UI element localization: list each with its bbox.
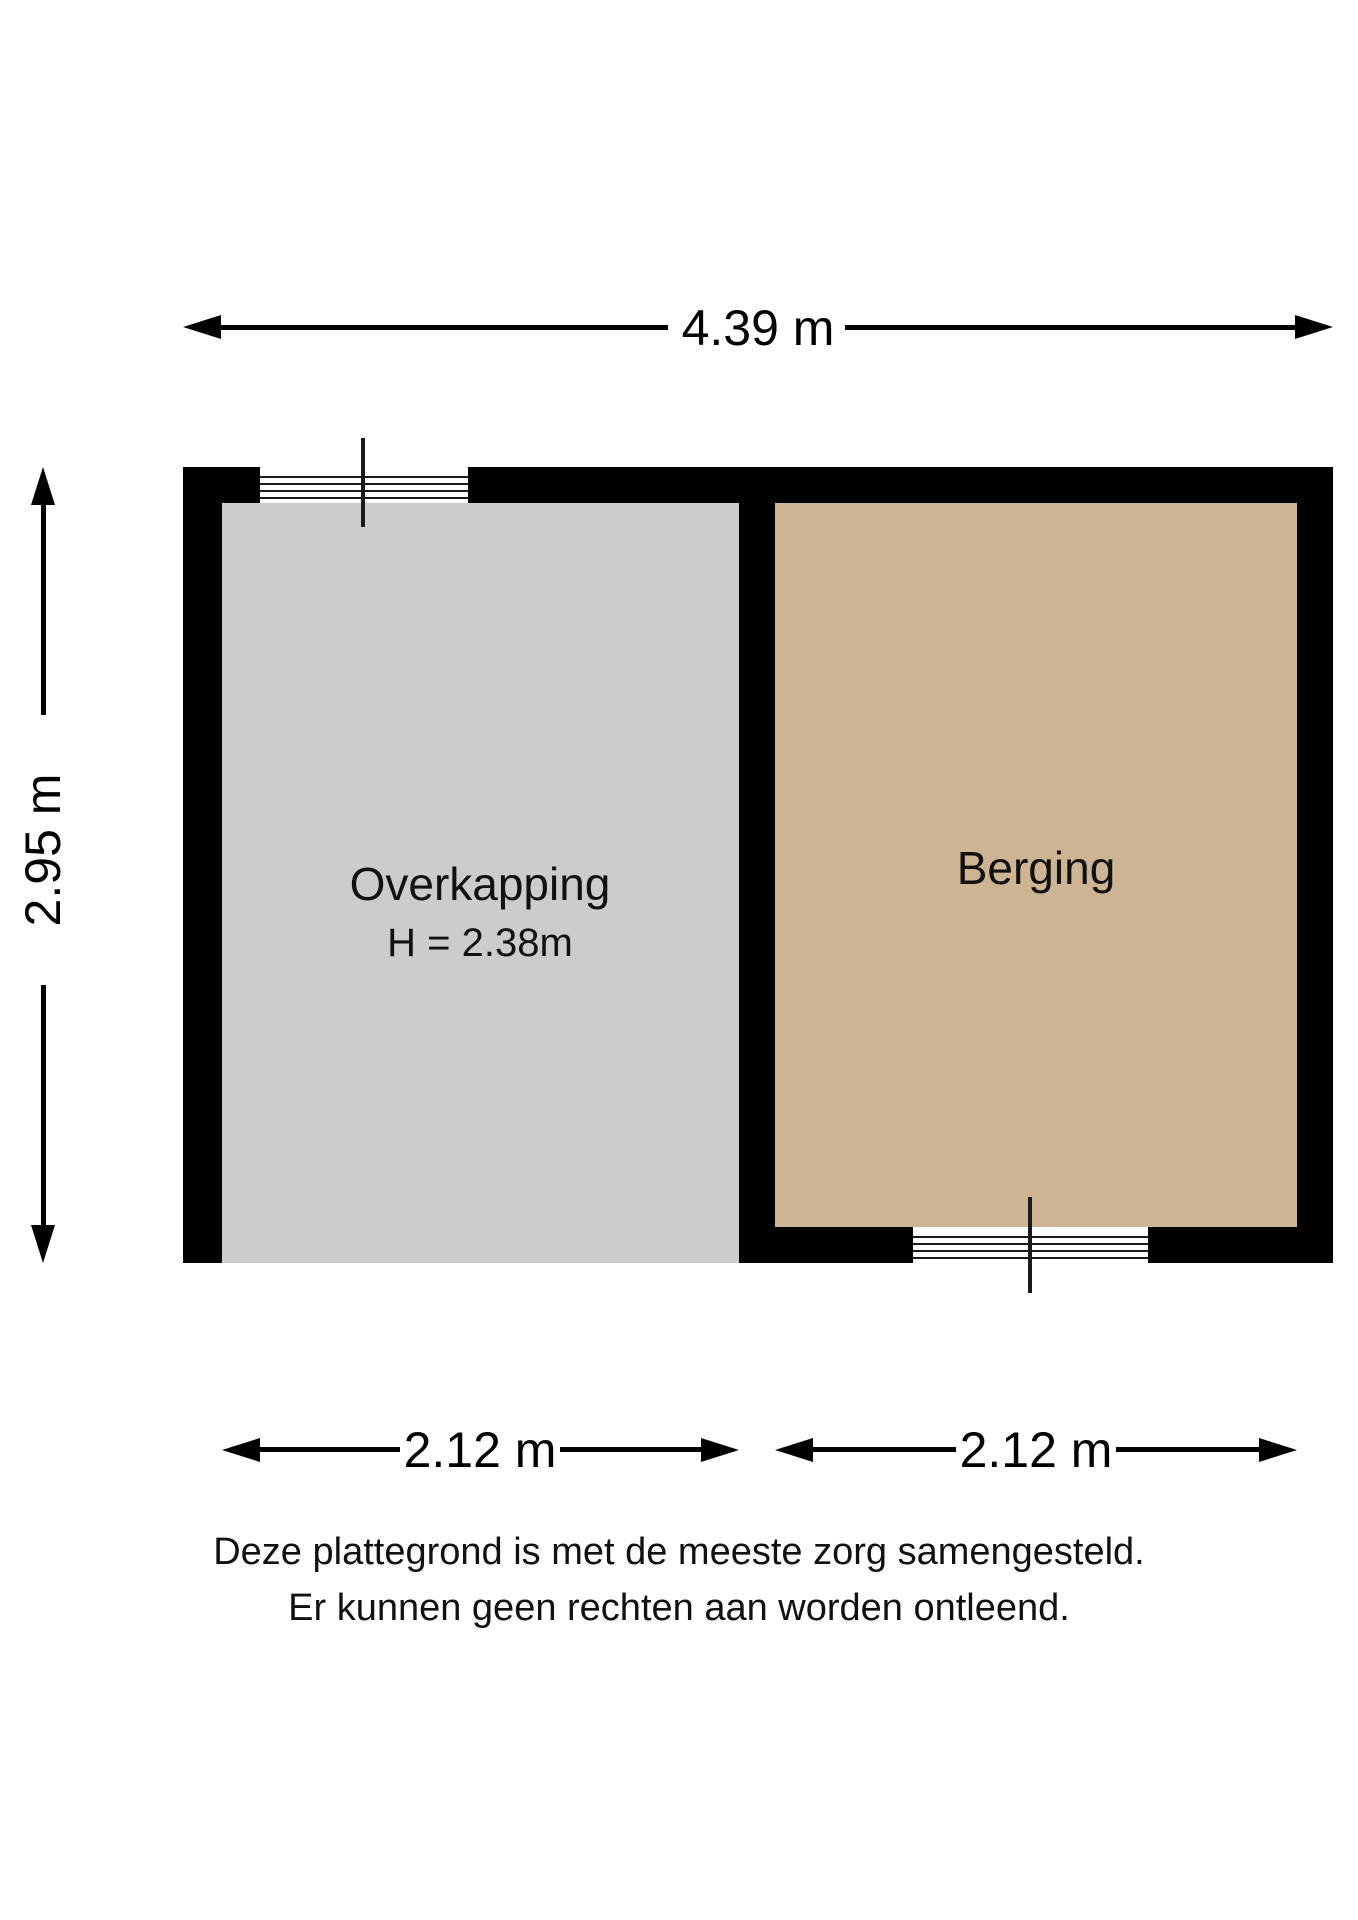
middle-wall <box>739 467 775 1263</box>
dimension-line <box>41 500 46 715</box>
disclaimer-line-2: Er kunnen geen rechten aan worden ontlee… <box>0 1580 1358 1636</box>
dimension-left-label: 2.95 m <box>18 710 68 990</box>
left-wall <box>183 467 222 1263</box>
bottom-window-mullion <box>1028 1197 1032 1293</box>
berging-label: Berging <box>836 841 1236 895</box>
arrow-right-icon <box>1259 1438 1297 1462</box>
bottom-wall-left-segment <box>739 1227 913 1263</box>
right-wall <box>1297 467 1333 1263</box>
arrow-left-icon <box>775 1438 813 1462</box>
disclaimer: Deze plattegrond is met de meeste zorg s… <box>0 1524 1358 1636</box>
dimension-line <box>41 985 46 1228</box>
dimension-line <box>560 1447 701 1452</box>
overkapping-height-label: H = 2.38m <box>280 921 680 965</box>
arrow-right-icon <box>1295 315 1333 339</box>
arrow-left-icon <box>183 315 221 339</box>
dimension-line <box>218 325 668 330</box>
top-window-mullion <box>361 438 365 527</box>
top-wall <box>468 467 1333 503</box>
top-wall-corner-block <box>183 467 260 503</box>
dimension-line <box>845 325 1298 330</box>
arrow-right-icon <box>701 1438 739 1462</box>
arrow-left-icon <box>222 1438 260 1462</box>
overkapping-label: Overkapping <box>280 857 680 911</box>
arrow-down-icon <box>31 1225 55 1263</box>
dimension-line <box>1116 1447 1259 1452</box>
bottom-wall-right-segment <box>1148 1227 1333 1263</box>
disclaimer-line-1: Deze plattegrond is met de meeste zorg s… <box>0 1524 1358 1580</box>
floor-plan: 4.39 m 2.95 m Overkapping H = 2.38m Berg… <box>0 0 1358 1920</box>
